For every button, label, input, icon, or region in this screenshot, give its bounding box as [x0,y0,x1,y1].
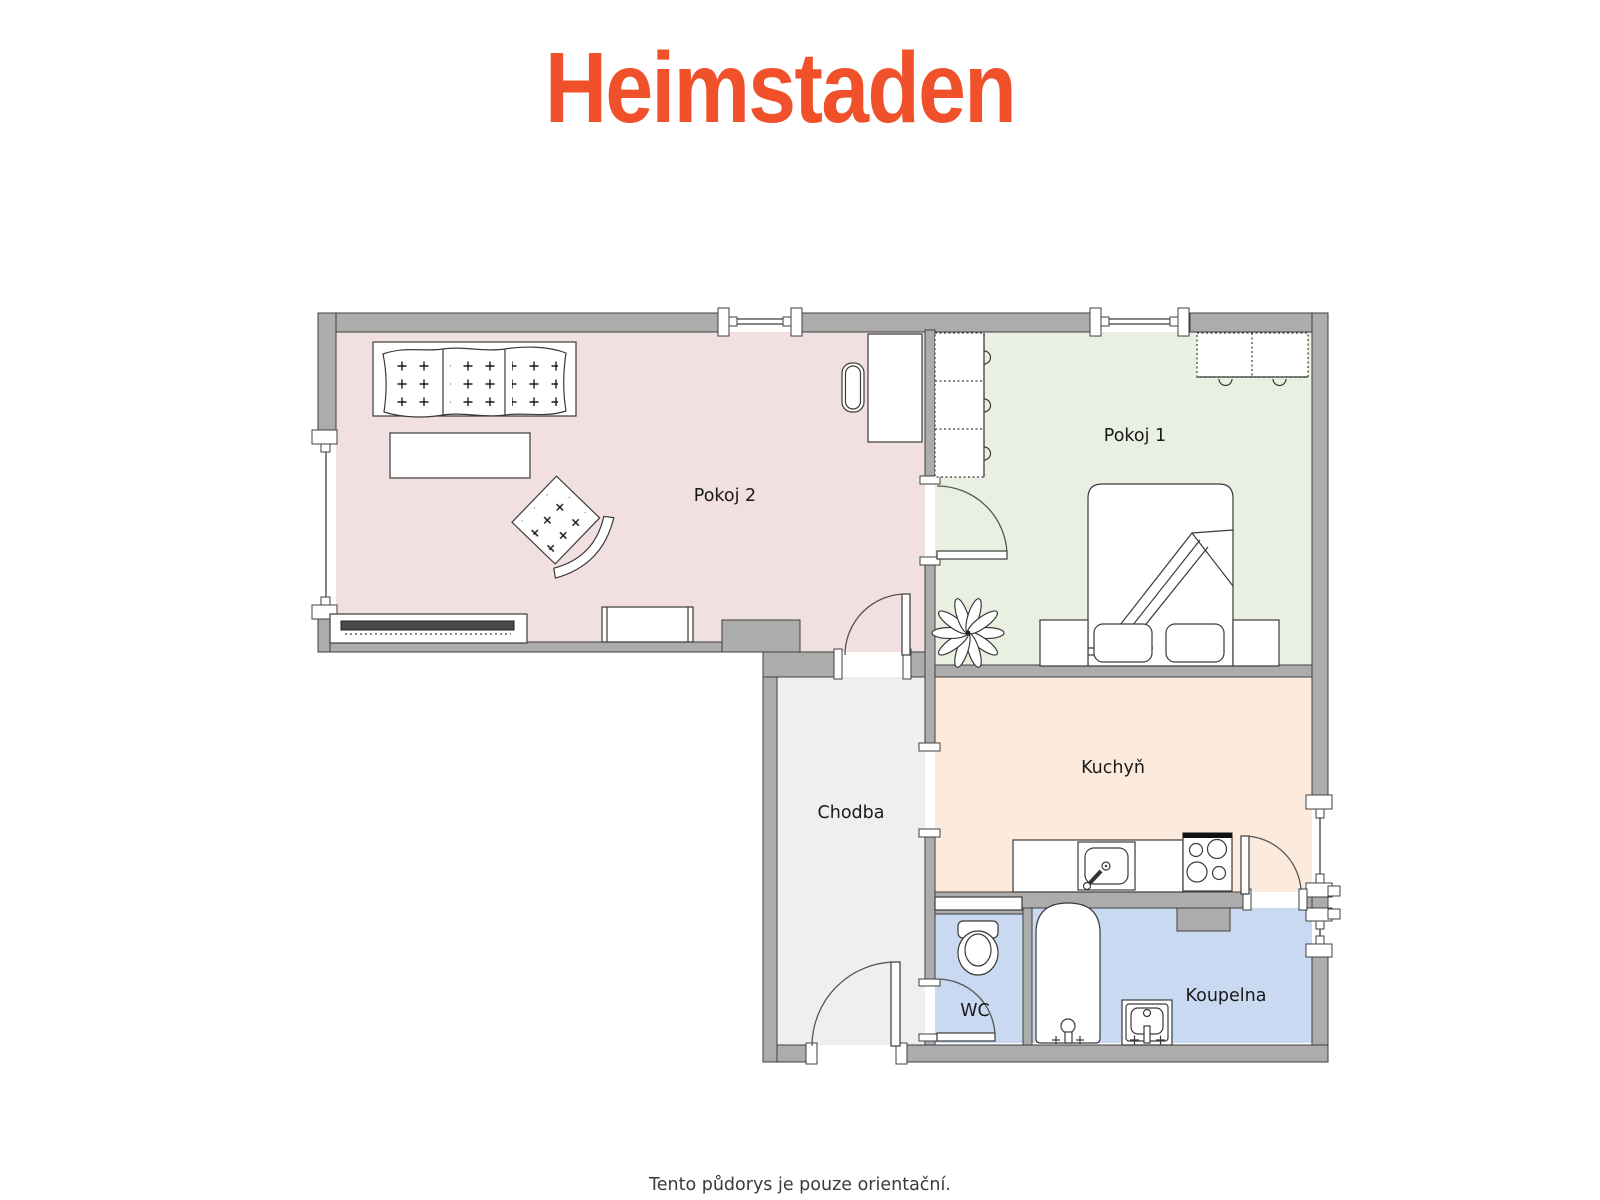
page: Heimstaden [0,0,1600,1200]
side-table [602,607,693,642]
room-label-pokoj1: Pokoj 1 [1104,426,1166,446]
wardrobe [935,333,991,477]
tv [341,621,514,630]
tv-bench [330,614,527,643]
toilet [958,921,998,975]
desk [868,334,922,442]
desk-chair [842,363,864,412]
nightstand-right [1233,620,1279,666]
sofa [373,342,576,417]
floorplan-canvas: Heimstaden [0,0,1600,1200]
room-label-chodba: Chodba [818,803,885,823]
footer-disclaimer: Tento půdorys je pouze orientační. [648,1175,951,1195]
room-label-koupelna: Koupelna [1186,986,1267,1006]
bed-cushion [1166,624,1224,662]
wc-niche [935,897,1022,910]
stove [1183,833,1232,891]
kitchen-sink [1078,842,1135,890]
bed [1088,484,1233,666]
nightstand-left [1040,620,1088,666]
bathtub [1036,903,1100,1044]
room-label-pokoj2: Pokoj 2 [694,486,756,506]
heimstaden-logo: Heimstaden [545,32,1015,144]
bed-cushion [1094,624,1152,662]
room-label-kuchyn: Kuchyň [1081,758,1145,778]
window-pokoj1-top [1090,308,1189,336]
window-pokoj2-left [312,430,337,619]
room-label-wc: WC [960,1001,990,1021]
chodba-floor [777,677,925,1045]
furniture-kuchyn [1013,833,1232,892]
window-pokoj2-top [718,308,802,336]
coffee-table [390,433,530,478]
washbasin [1122,1000,1172,1045]
